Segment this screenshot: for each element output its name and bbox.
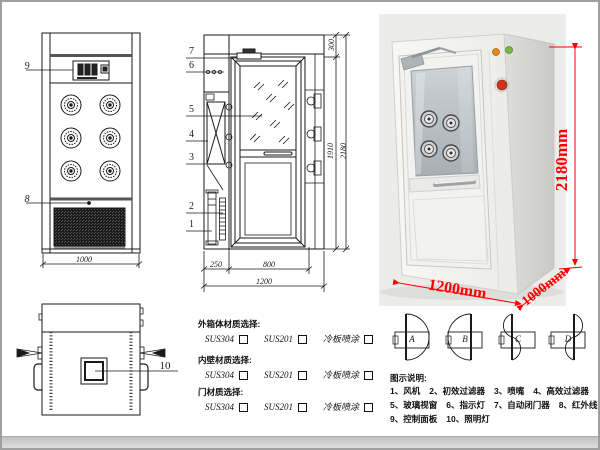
section-leader-lines — [186, 58, 262, 231]
air-shower-photo — [380, 34, 564, 300]
legend-row-1: 1、风机 2、初效过滤器 3、喷嘴 4、高效过滤器 — [390, 387, 589, 396]
bottom-border-strip — [2, 436, 598, 449]
section-label-4: 4 — [186, 130, 197, 140]
material-checkbox[interactable] — [298, 403, 307, 412]
legend-item: 6、指示灯 — [446, 401, 485, 410]
material-option-label: SUS304 — [205, 403, 234, 412]
legend-title: 图示说明: — [390, 374, 427, 383]
legend-row-3: 9、控制面板 10、照明灯 — [390, 415, 490, 424]
red-button — [497, 80, 507, 90]
material-checkbox[interactable] — [298, 335, 307, 344]
nozzles-front — [61, 95, 120, 181]
section-label-3: 3 — [186, 153, 197, 163]
material-option-label: SUS201 — [264, 403, 293, 412]
legend-item: 7、自动闭门器 — [494, 401, 550, 410]
air-shower-spec-sheet: 9 8 1000 7 6 5 4 3 2 1 300 1910 2180 250… — [0, 0, 600, 450]
legend-item: 3、喷嘴 — [494, 387, 524, 396]
door-config-label-d: D — [561, 335, 575, 344]
green-indicator-light — [506, 47, 513, 54]
legend-item: 5、玻璃视窗 — [390, 401, 437, 410]
material-checkbox[interactable] — [364, 403, 373, 412]
legend-item: 2、初效过滤器 — [429, 387, 485, 396]
plan-label-10: 10 — [156, 361, 174, 372]
material-option-label: SUS304 — [205, 371, 234, 380]
plan-hinge-wings — [17, 347, 165, 359]
door-section — [231, 57, 305, 247]
material-options-door: SUS304 SUS201 冷板喷涂 — [205, 403, 373, 412]
door-config-diagrams — [393, 314, 585, 360]
legend-item: 1、风机 — [390, 387, 420, 396]
door-config-label-c: C — [511, 335, 525, 344]
material-checkbox[interactable] — [239, 371, 248, 380]
legend-item: 9、控制面板 — [390, 415, 437, 424]
material-checkbox[interactable] — [364, 371, 373, 380]
front-label-9: 9 — [21, 62, 33, 72]
control-panel — [73, 61, 109, 80]
material-checkbox[interactable] — [298, 371, 307, 380]
section-label-7: 7 — [186, 47, 197, 57]
fan-filter-unit — [206, 94, 232, 190]
legend-item: 8、红外线感应器 — [559, 401, 600, 410]
section-label-1: 1 — [186, 220, 197, 230]
exhaust-grille — [54, 208, 125, 246]
orange-indicator-light — [493, 49, 500, 56]
material-options-inner: SUS304 SUS201 冷板喷涂 — [205, 371, 373, 380]
material-option-label: 冷板喷涂 — [323, 403, 359, 412]
material-option-label: SUS201 — [264, 371, 293, 380]
door-closer-symbol — [237, 49, 261, 59]
plan-view-drawing — [17, 304, 178, 415]
section-label-2: 2 — [186, 202, 197, 212]
section-dim-1200: 1200 — [248, 278, 280, 286]
legend-row-2: 5、玻璃视窗 6、指示灯 7、自动闭门器 8、红外线感应器 — [390, 401, 600, 410]
material-checkbox[interactable] — [364, 335, 373, 344]
door-config-label-b: B — [458, 335, 472, 344]
photo-door — [399, 50, 491, 269]
section-dim-250: 250 — [204, 261, 228, 269]
material-option-label: 冷板喷涂 — [323, 371, 359, 380]
section-dim-800: 800 — [256, 261, 282, 269]
material-section-title-outer: 外箱体材质选择: — [198, 320, 260, 329]
front-label-8: 8 — [21, 195, 33, 205]
material-section-title-inner: 内壁材质选择: — [198, 356, 252, 365]
section-dim-300: 300 — [328, 35, 336, 55]
section-label-6: 6 — [186, 61, 197, 71]
material-checkbox[interactable] — [239, 335, 248, 344]
legend-item: 4、高效过滤器 — [533, 387, 589, 396]
material-section-title-door: 门材质选择: — [198, 388, 243, 397]
material-option-label: 冷板喷涂 — [323, 335, 359, 344]
material-options-outer: SUS304 SUS201 冷板喷涂 — [205, 335, 373, 344]
section-dim-1910: 1910 — [327, 136, 335, 166]
section-label-5: 5 — [186, 105, 197, 115]
material-option-label: SUS201 — [264, 335, 293, 344]
material-checkbox[interactable] — [239, 403, 248, 412]
door-config-label-a: A — [405, 335, 419, 344]
material-option-label: SUS304 — [205, 335, 234, 344]
nozzles-section — [305, 54, 324, 249]
section-view-drawing — [186, 32, 350, 292]
section-dim-2180: 2180 — [340, 136, 348, 166]
front-dim-width: 1000 — [72, 256, 96, 264]
legend-item: 10、照明灯 — [446, 415, 489, 424]
technical-drawing-layer — [2, 2, 600, 450]
photo-dim-height: 2180mm — [553, 78, 571, 242]
blower-pipe — [206, 190, 226, 245]
front-view-drawing — [26, 33, 142, 268]
